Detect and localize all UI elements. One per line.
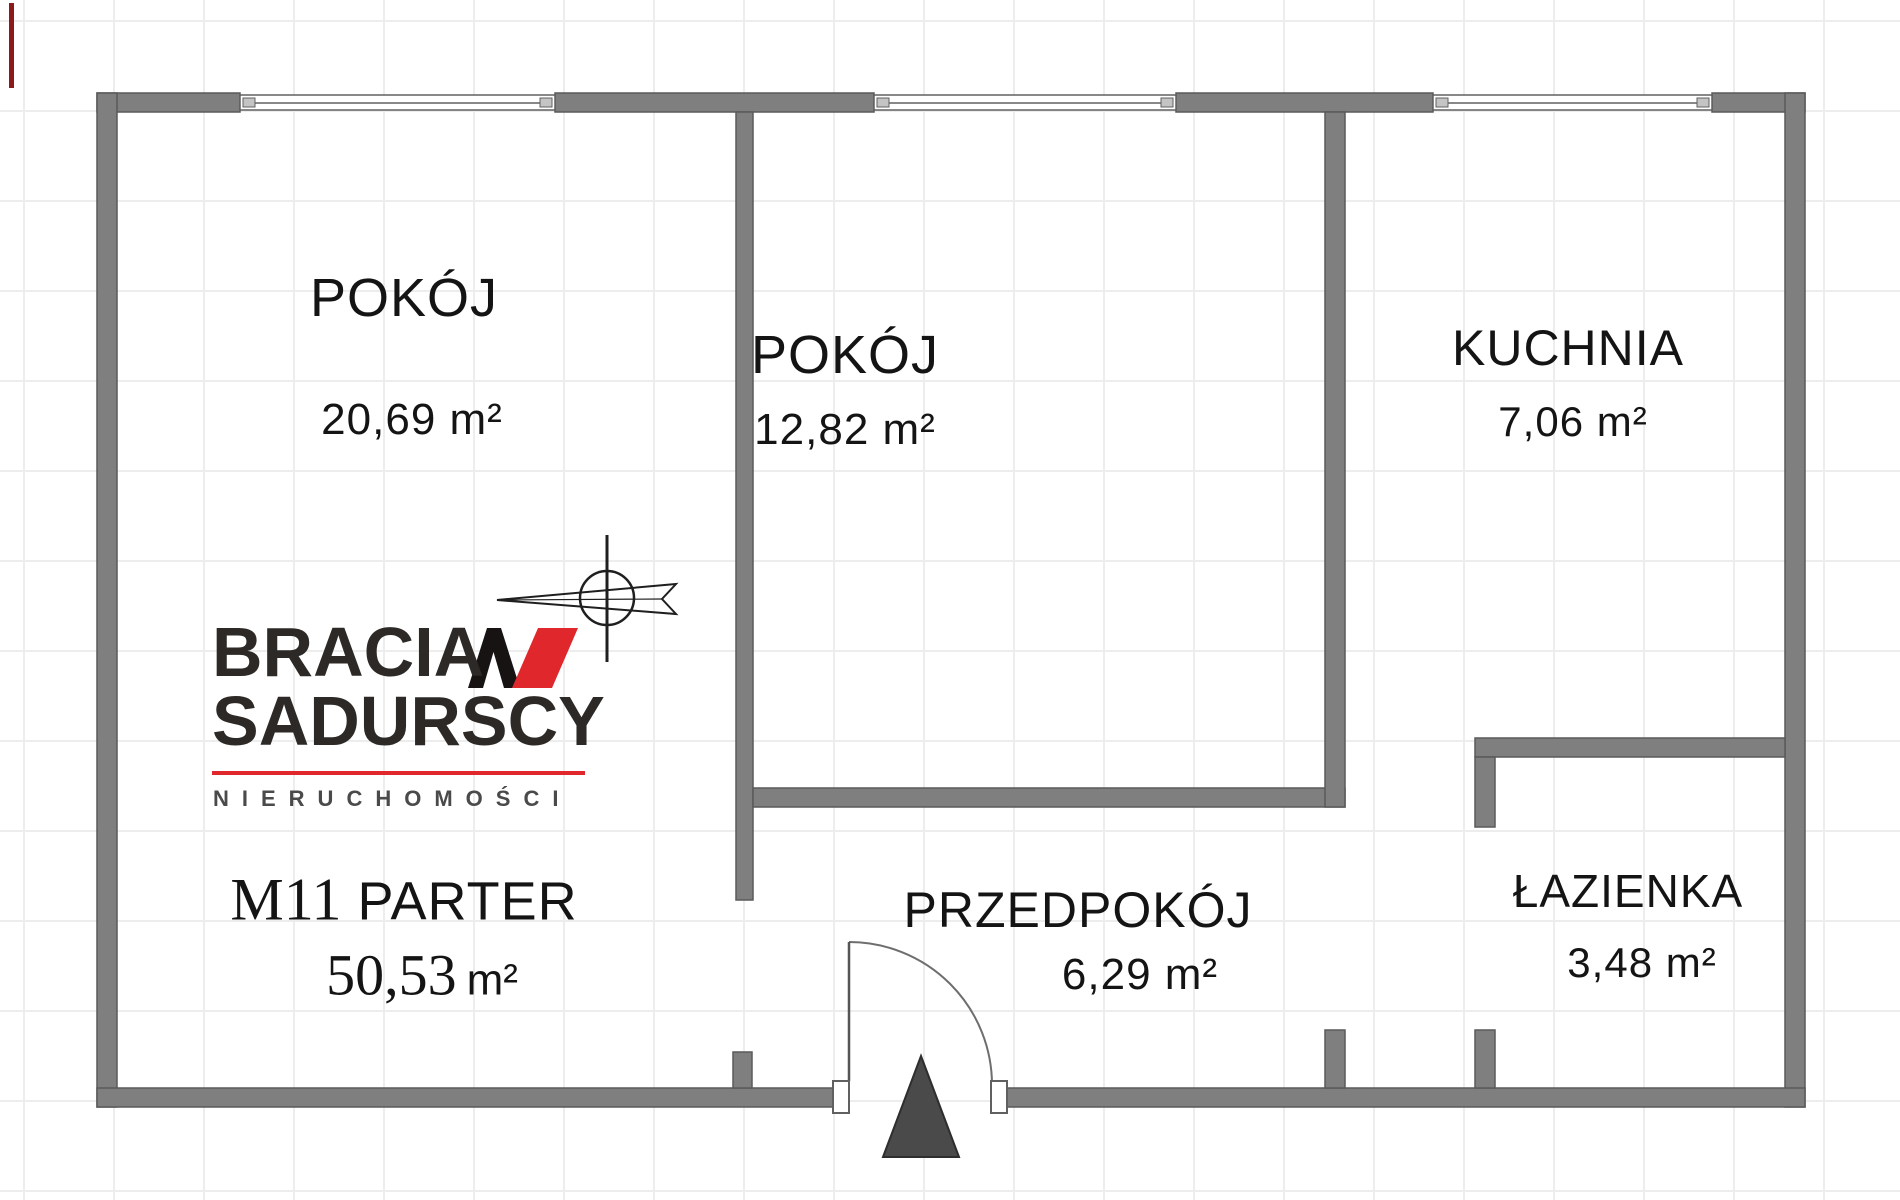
room-label-pokoj-2: POKÓJ [751, 324, 939, 386]
logo-lambda-icon [468, 628, 578, 688]
floorplan-svg [0, 0, 1900, 1200]
window-icon-3 [1433, 95, 1712, 110]
unit-area-unit: m² [467, 956, 518, 1006]
entrance-arrow-icon [883, 1056, 959, 1157]
room-area-przedpokoj: 6,29 m² [1062, 950, 1218, 1000]
window-icon-2 [874, 95, 1176, 110]
window-icon-1 [240, 95, 555, 110]
unit-number: M11 [230, 866, 341, 935]
logo-line2: SADURSCY [212, 686, 605, 756]
room-label-pokoj-1: POKÓJ [310, 267, 498, 329]
unit-total-area: 50,53 m² [326, 942, 518, 1009]
logo-tagline: NIERUCHOMOŚCI [213, 786, 571, 812]
unit-area-value: 50,53 [326, 942, 457, 1009]
compass-icon [497, 535, 676, 662]
unit-floor: PARTER [358, 871, 578, 933]
room-area-pokoj-2: 12,82 m² [754, 405, 936, 455]
room-area-pokoj-1: 20,69 m² [321, 395, 503, 445]
room-label-kuchnia: KUCHNIA [1452, 319, 1684, 377]
room-area-kuchnia: 7,06 m² [1498, 398, 1647, 446]
floorplan-page: POKÓJ 20,69 m² POKÓJ 12,82 m² KUCHNIA 7,… [0, 0, 1900, 1200]
logo-line1: BRACIA [212, 617, 484, 687]
logo-underline [212, 771, 585, 775]
room-label-przedpokoj: PRZEDPOKÓJ [904, 881, 1253, 939]
unit-title: M11 PARTER [230, 866, 577, 935]
room-label-lazienka: ŁAZIENKA [1513, 864, 1743, 918]
room-area-lazienka: 3,48 m² [1567, 939, 1716, 987]
